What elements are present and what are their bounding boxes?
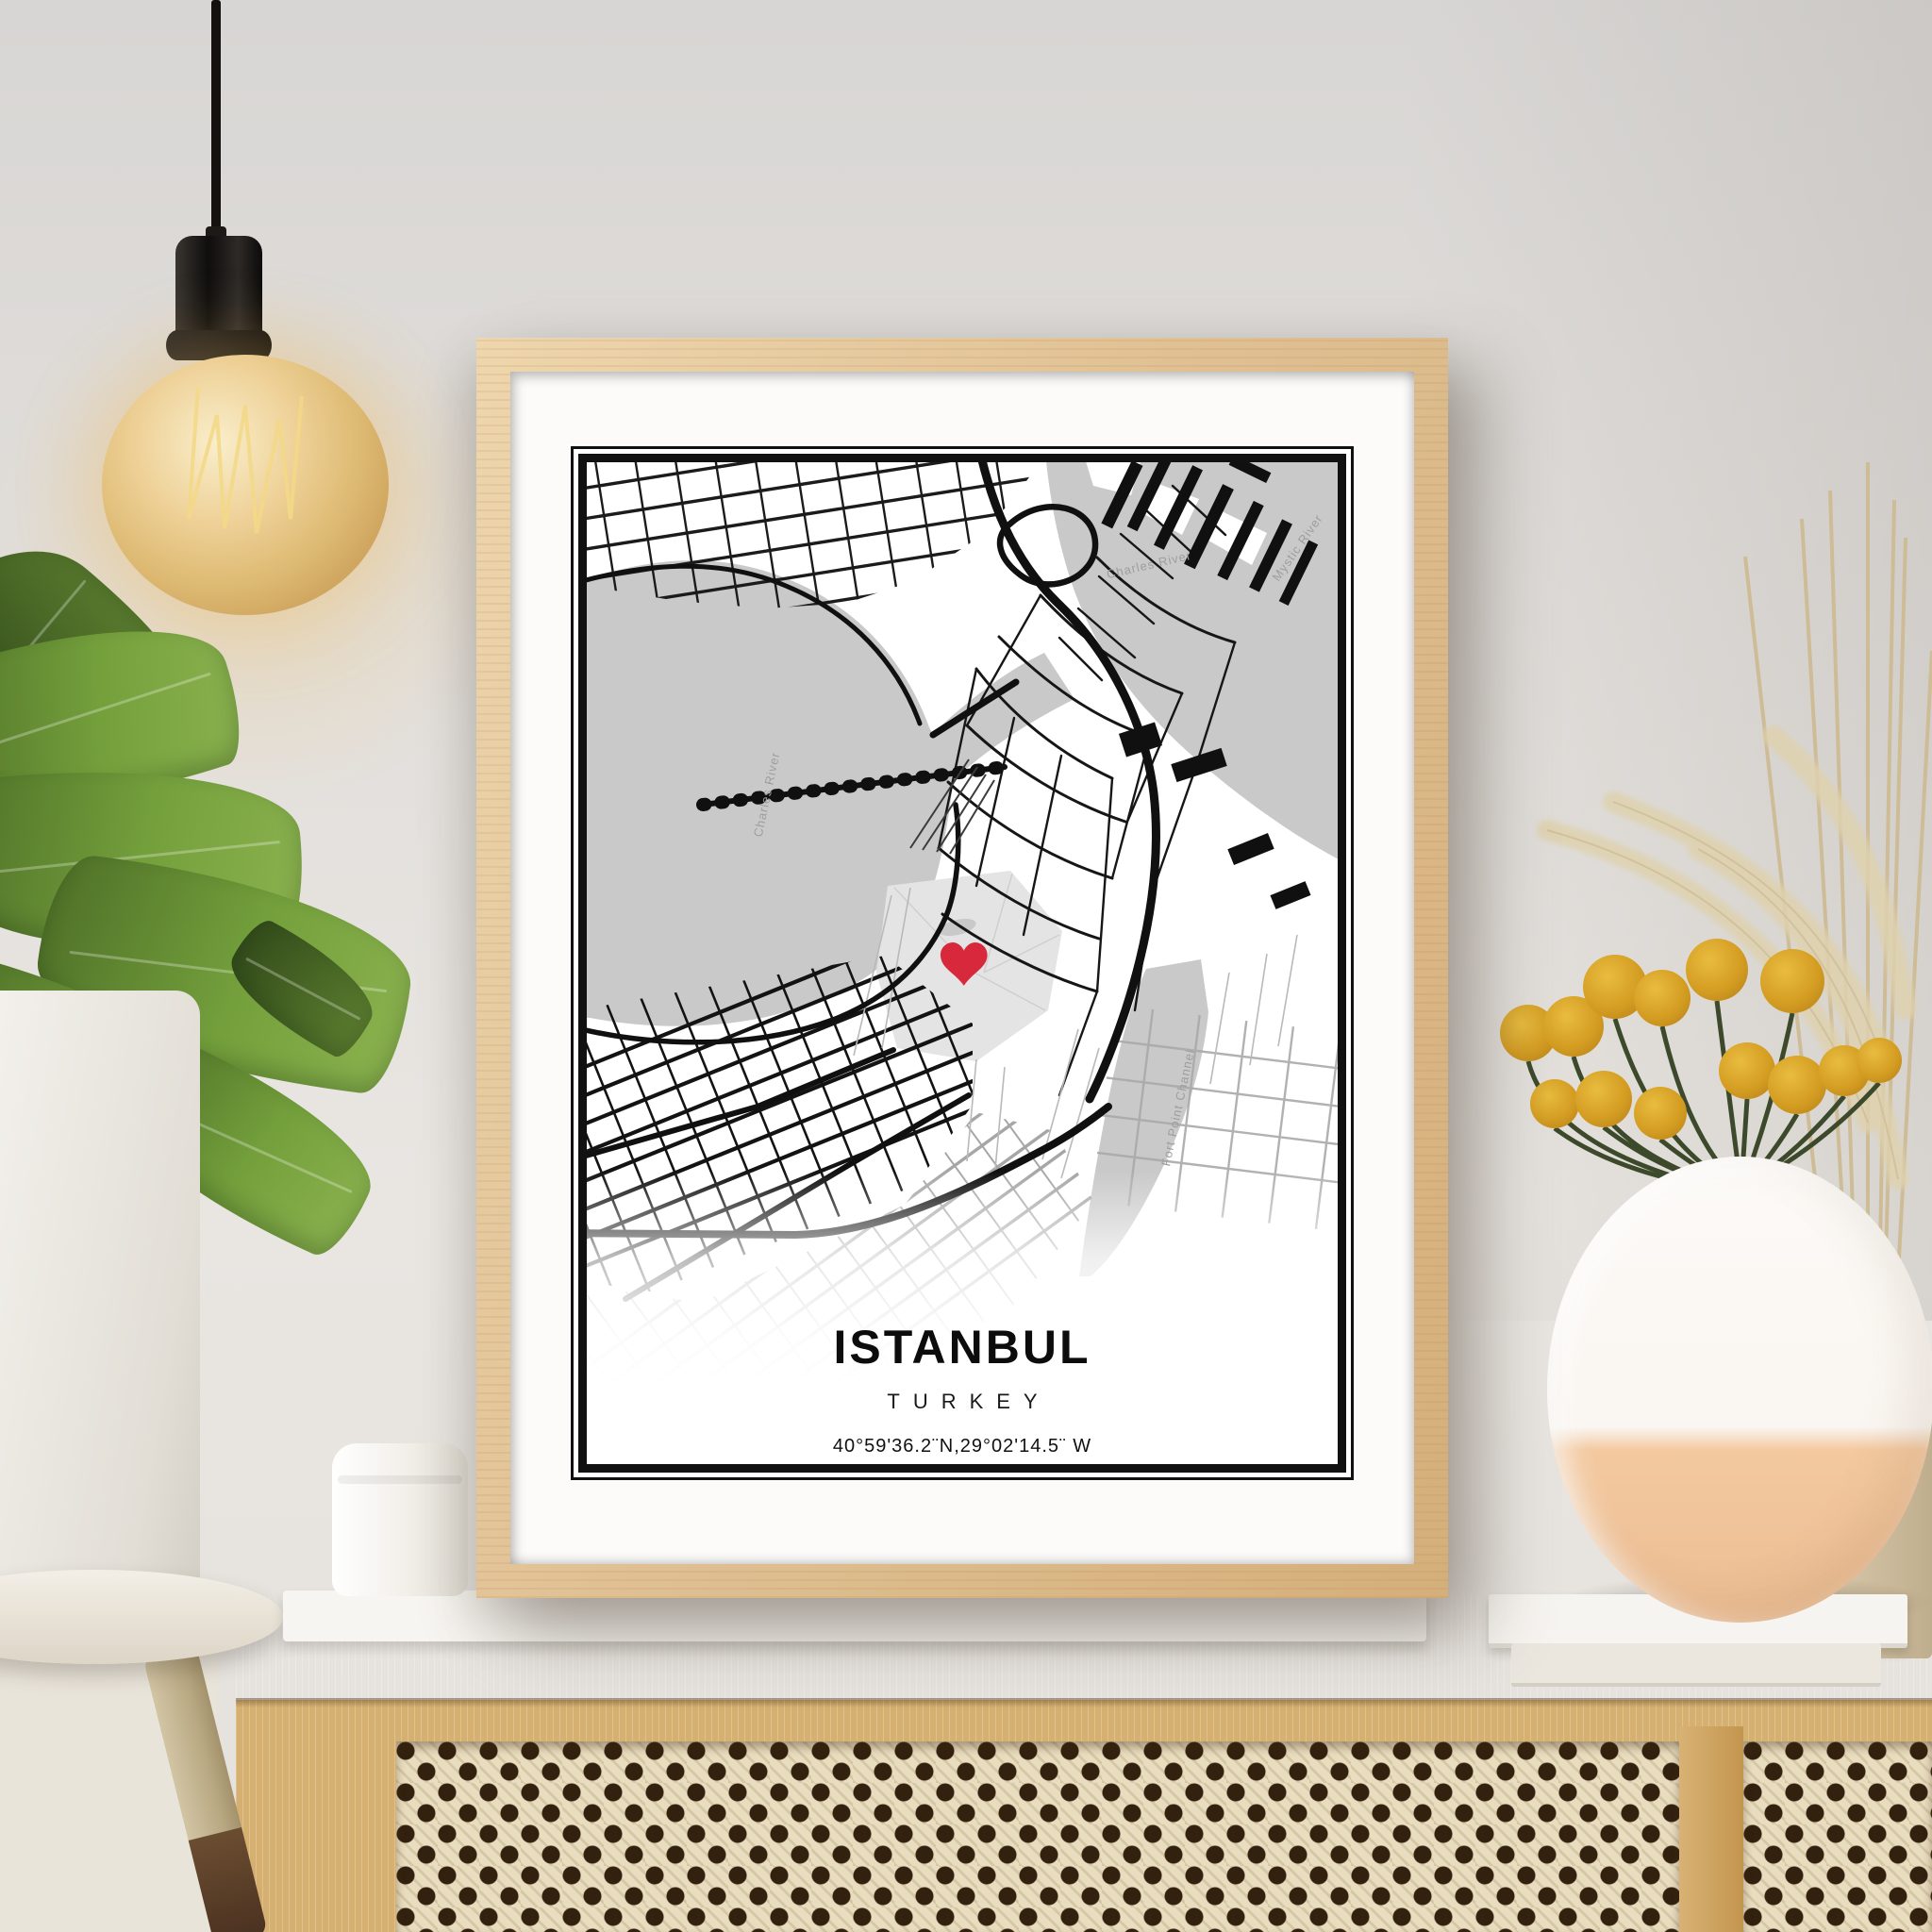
map-poster: Charles River Charles River Mystic River… [569, 444, 1356, 1482]
picture-frame: Charles River Charles River Mystic River… [476, 338, 1448, 1598]
poster-country: TURKEY [887, 1390, 1050, 1413]
frame-mat: Charles River Charles River Mystic River… [510, 372, 1414, 1564]
sideboard-door-groove [236, 1698, 1932, 1707]
cane-door-panel [1743, 1741, 1932, 1932]
bulb-filament [142, 377, 349, 594]
white-planter [0, 991, 200, 1599]
pendant-lamp-cord [211, 0, 221, 240]
white-tray [283, 1591, 1426, 1641]
poster-coordinates: 40°59'36.2¨N,29°02'14.5¨ W [833, 1436, 1091, 1457]
sideboard-door-stile [1679, 1726, 1743, 1932]
poster-title: ISTANBUL [833, 1321, 1091, 1374]
white-jar [332, 1443, 468, 1596]
cane-door-panel [396, 1741, 1679, 1932]
room-scene: Charles River Charles River Mystic River… [0, 0, 1932, 1932]
map-graphic: Charles River Charles River Mystic River… [569, 444, 1356, 1482]
sphere-vase [1547, 1157, 1932, 1623]
